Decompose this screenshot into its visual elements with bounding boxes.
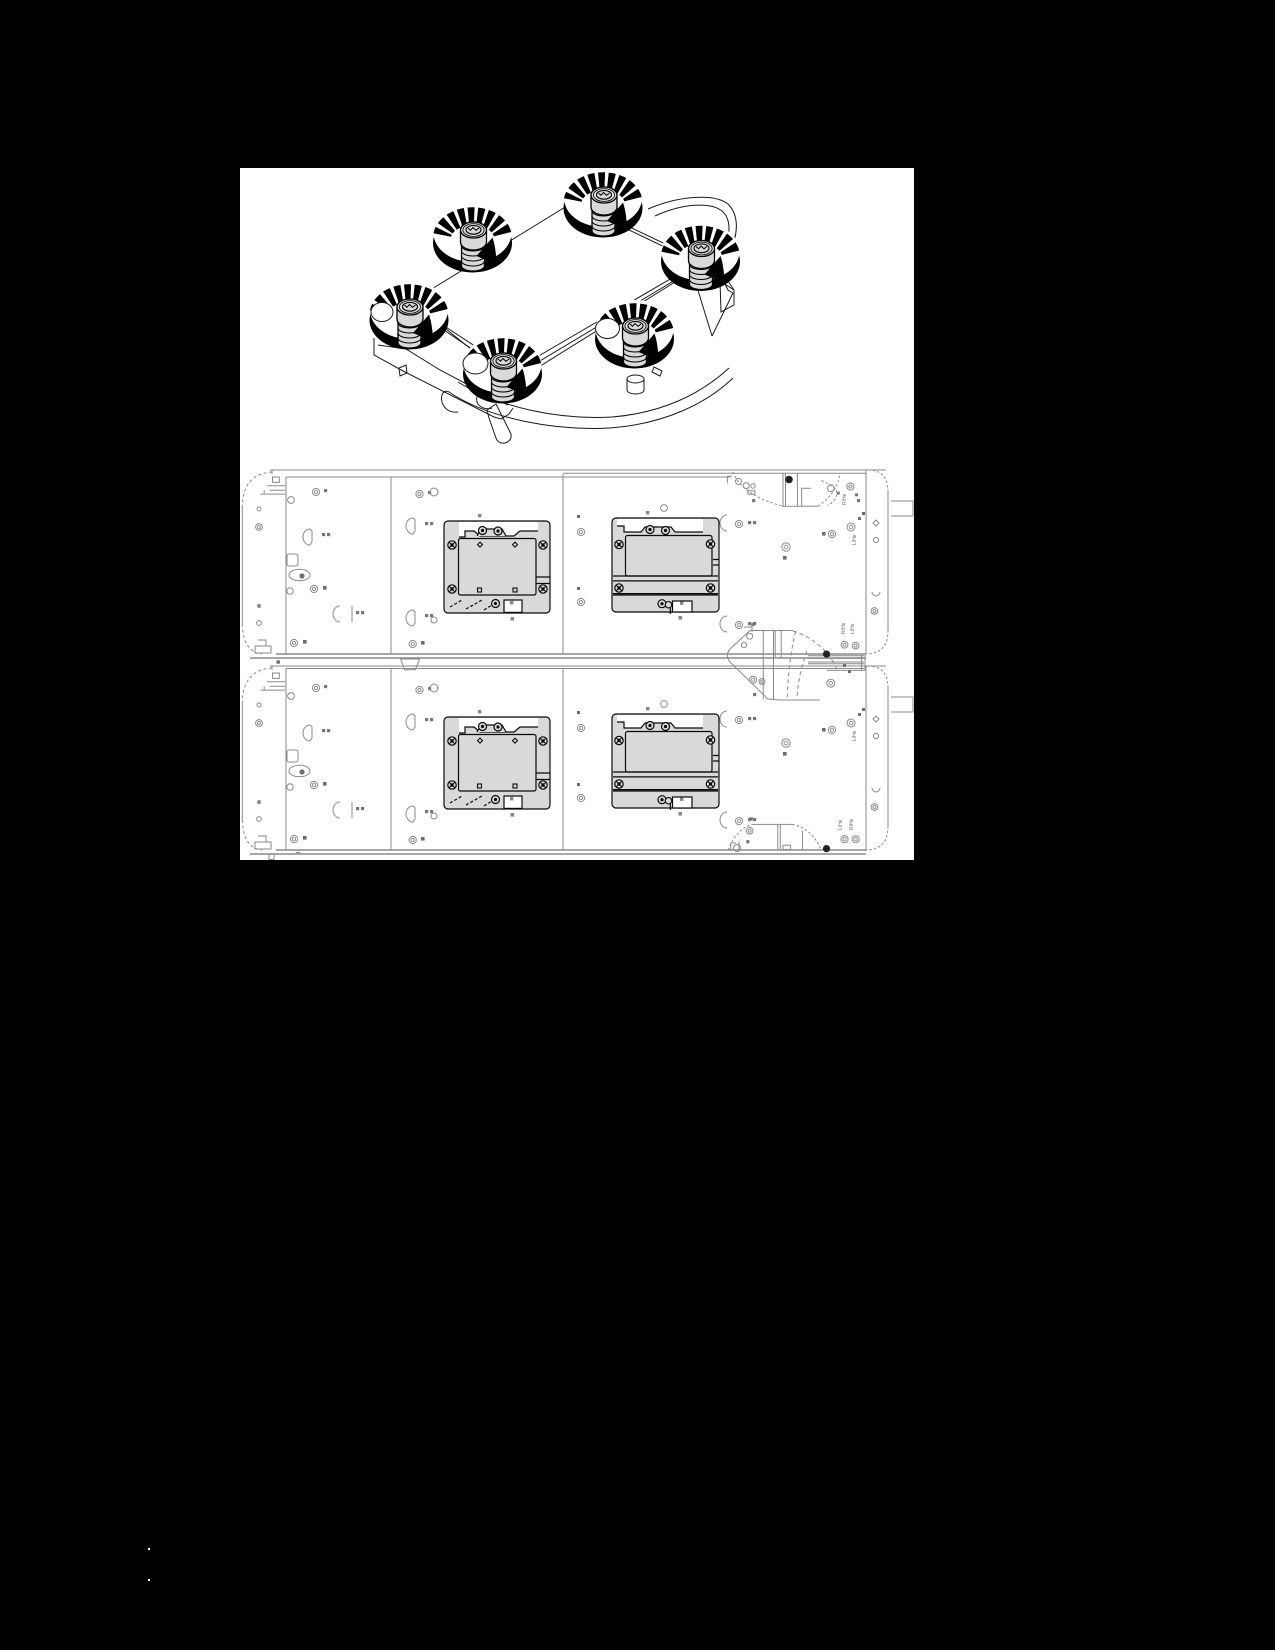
svg-text:L/He: L/He (850, 623, 856, 634)
svg-text:R/He: R/He (842, 493, 848, 505)
svg-text:R/He: R/He (849, 818, 855, 830)
svg-text:L/He: L/He (852, 534, 858, 545)
svg-text:L/He: L/He (852, 730, 858, 741)
svg-text:R/He: R/He (841, 622, 847, 634)
svg-text:L/He: L/He (838, 819, 844, 830)
